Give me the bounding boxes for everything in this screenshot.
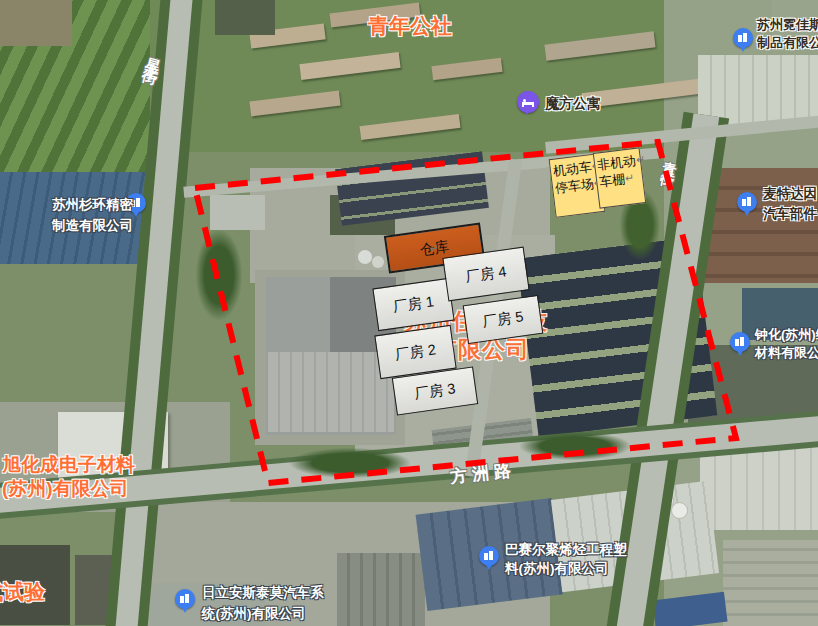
map-tank [372, 256, 384, 268]
map-warehouse-building [337, 553, 425, 626]
building-icon [479, 546, 499, 566]
building-icon [175, 589, 195, 609]
poi-label-basell-line2: 料(苏州)有限公司 [505, 560, 609, 577]
return-mark: ↵ [635, 151, 646, 169]
poi-label-shanhuan-line2: 制造有限公司 [52, 217, 133, 234]
map-building [723, 540, 818, 626]
building-icon [733, 28, 753, 48]
map-tank [358, 250, 372, 264]
building-icon [737, 192, 757, 212]
building-icon [730, 332, 750, 352]
return-mark: ↵ [498, 312, 509, 326]
return-mark: ↵ [430, 384, 441, 398]
poi-label-metaldyne-line2: 汽车部件 [763, 205, 817, 222]
map-trees [196, 230, 242, 320]
bed-icon [517, 91, 539, 113]
return-mark: ↵ [408, 297, 419, 311]
area-label-shiyan: 式试验 [0, 578, 45, 606]
poi-label-mofang: 魔方公寓 [545, 95, 601, 112]
poi-label-metaldyne-line1: 麦特达因 [763, 185, 817, 202]
bike-shed-label-line2: 车棚 [598, 171, 626, 189]
poi-label-zhonghua-line2: 材料有限公司 [755, 344, 818, 361]
poi-label-nijias-line2: 制品有限公司 [757, 34, 818, 51]
map-tank [671, 502, 688, 519]
return-mark: ↵ [481, 267, 492, 281]
map-trees [520, 432, 630, 460]
poi-label-nijias-line1: 苏州霓佳斯 [757, 16, 818, 33]
road-label-qingqiu: 青丘街 [661, 148, 682, 169]
poi-label-shanhuan-line1: 苏州杉环精密 [52, 196, 133, 213]
area-label-asahi-line2: (苏州)有限公司 [2, 476, 129, 502]
satellite-map: 青年公社 魔方公寓 苏州霓佳斯 制品有限公司 苏州杉环精密 制造有限公司 麦特达… [0, 0, 818, 626]
map-field-brown [0, 0, 72, 46]
map-trees [290, 448, 410, 478]
poi-label-zhonghua-line1: 钟化(苏州)缓 [755, 326, 818, 343]
poi-label-basell-line1: 巴赛尔聚烯烃工程塑 [505, 541, 627, 558]
return-mark: ↵ [429, 241, 440, 255]
map-factory-building-light [268, 352, 394, 432]
area-label-asahi-line1: 旭化成电子材料 [2, 452, 135, 478]
bike-shed-box: 非机动↵ 车棚↵ [593, 147, 646, 208]
poi-label-hitachi-line2: 统(苏州)有限公司 [202, 605, 306, 622]
return-mark: ↵ [624, 169, 635, 187]
map-building-gray [210, 195, 265, 230]
parking-label-line2: 停车场 [554, 176, 595, 196]
return-mark: ↵ [410, 345, 421, 359]
map-building [215, 0, 275, 35]
area-label-qingnian-commune: 青年公社 [368, 12, 452, 40]
poi-label-hitachi-line1: 日立安斯泰莫汽车系 [202, 584, 324, 601]
